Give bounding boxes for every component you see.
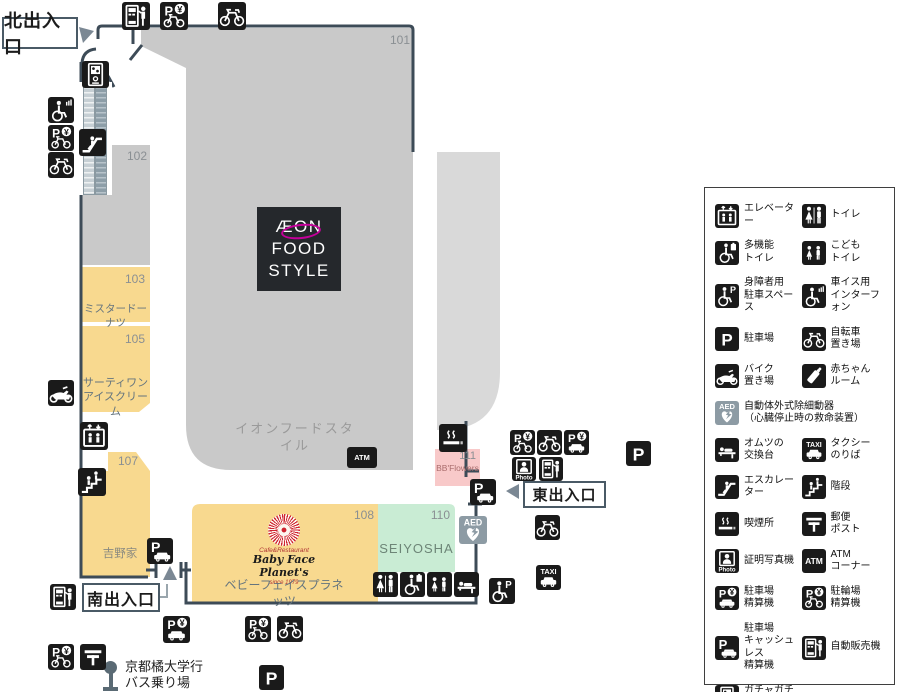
photo-icon: Photo — [715, 549, 739, 573]
toilet-icon — [802, 204, 826, 228]
toilet-icon — [373, 572, 398, 597]
aeon-logo-line1: ÆON — [276, 216, 323, 238]
bicycle-icon — [277, 616, 303, 642]
diaper-icon — [715, 438, 739, 462]
babyface-logo-main: Baby Face Planet's — [231, 554, 337, 579]
legend-item-label: エスカレーター — [744, 475, 800, 500]
aed-icon: AED — [459, 516, 487, 544]
legend-item-vending: 自動販売機 — [802, 636, 887, 660]
svg-text:ATM: ATM — [354, 453, 370, 462]
bicycle-pay-icon: P¥ — [245, 616, 271, 642]
east-entrance-label: 東出入口 — [523, 481, 606, 508]
bus-stop-line1: 京都橘大学行 — [125, 659, 203, 675]
svg-text:¥: ¥ — [579, 431, 584, 441]
store-name-31-icecream: サーティワン アイスクリーム — [81, 376, 150, 419]
aeon-logo-line2: FOOD — [271, 238, 326, 260]
legend-item-label: 階段 — [831, 481, 851, 494]
photo-icon: Photo — [512, 457, 536, 481]
taxi-icon: TAXI — [536, 565, 561, 590]
store-name-aeon-food-style: イオンフードスタイル — [230, 421, 360, 455]
area-number-107: 107 — [94, 454, 138, 468]
legend-item-diaper: オムツの 交換台 — [715, 438, 800, 463]
area-number-105: 105 — [99, 332, 145, 346]
legend-item-handicap-parking: P身障者用 駐車スペース — [715, 277, 800, 315]
legend-item-toilet: トイレ — [802, 204, 887, 228]
svg-text:AED: AED — [464, 518, 482, 528]
svg-text:ATM: ATM — [805, 556, 823, 566]
legend-item-motorcycle: バイク 置き場 — [715, 364, 800, 389]
area-number-108: 108 — [330, 508, 374, 522]
bicycle-pay-icon: P¥ — [802, 586, 826, 610]
svg-text:¥: ¥ — [64, 646, 69, 656]
svg-text:P: P — [730, 285, 736, 295]
vending-icon — [539, 457, 563, 481]
gacha-icon — [715, 685, 739, 692]
legend-item-wheelchair-intercom: 車イス用 インターフォン — [802, 277, 887, 315]
legend-panel: エレベータートイレ多機能 トイレこども トイレP身障者用 駐車スペース車イス用 … — [704, 187, 895, 685]
svg-text:P: P — [505, 580, 512, 591]
svg-text:¥: ¥ — [261, 618, 266, 628]
legend-item-label: 自転車 置き場 — [831, 327, 861, 352]
bicycle-icon — [218, 2, 246, 30]
bus-stop-base — [103, 687, 118, 691]
bicycle-icon — [535, 515, 560, 540]
svg-text:P: P — [633, 444, 645, 464]
svg-text:¥: ¥ — [177, 5, 183, 15]
elevator-icon — [715, 204, 739, 228]
motorcycle-icon — [48, 380, 74, 406]
legend-item-label: 車イス用 インターフォン — [831, 277, 887, 315]
aeon-logo-line3: STYLE — [268, 260, 329, 282]
kidstoilet-icon — [427, 572, 452, 597]
legend-item-label: 多機能 トイレ — [744, 240, 774, 265]
parking-pay-icon: P¥ — [715, 586, 739, 610]
elevator-icon — [80, 422, 108, 450]
parking-pay-icon: P¥ — [564, 430, 589, 455]
aeon-food-style-logo: ÆON FOOD STYLE — [257, 207, 341, 291]
smoking-icon — [439, 424, 467, 452]
legend-item-stairs: 階段 — [802, 475, 887, 499]
post-icon — [802, 512, 826, 536]
legend-item-label: 駐車場 精算機 — [744, 586, 774, 611]
bicycle-icon — [537, 430, 562, 455]
bicycle-pay-icon: P¥ — [160, 2, 188, 30]
legend-item-elevator: エレベーター — [715, 203, 800, 228]
escalator-icon — [79, 129, 106, 156]
bus-stop-label: 京都橘大学行 バス乗り場 — [125, 659, 203, 692]
bicycle-icon — [802, 327, 826, 351]
area-number-102: 102 — [103, 149, 147, 163]
stairs-icon — [78, 468, 106, 496]
svg-text:TAXI: TAXI — [540, 567, 556, 576]
legend-grid: エレベータートイレ多機能 トイレこども トイレP身障者用 駐車スペース車イス用 … — [715, 203, 886, 692]
store-name-bb-flowers: BB'Flowers — [435, 463, 480, 474]
post-icon — [80, 644, 106, 670]
legend-item-parking-pay: P¥駐車場 精算機 — [715, 586, 800, 611]
kidstoilet-icon — [802, 241, 826, 265]
parking-icon: P — [715, 327, 739, 351]
legend-item-label: バイク 置き場 — [744, 364, 774, 389]
babyroom-icon — [802, 364, 826, 388]
legend-item-label: ガチャガチャ — [744, 685, 800, 692]
area-number-101: 101 — [368, 33, 410, 47]
legend-item-parking: P駐車場 — [715, 327, 800, 351]
north-entrance-arrow — [79, 27, 94, 43]
east-entrance-arrow — [506, 484, 519, 499]
vending-icon — [802, 636, 826, 660]
legend-item-escalator: エスカレーター — [715, 475, 800, 500]
bus-stop-pole — [109, 673, 113, 687]
legend-item-parking-cashless: P駐車場 キャッシュレス 精算機 — [715, 623, 800, 673]
parking-pay-icon: P¥ — [163, 616, 190, 643]
wheelchair-intercom-icon — [48, 97, 74, 123]
parking-icon: P — [626, 441, 651, 466]
legend-item-label: トイレ — [831, 209, 861, 222]
svg-text:P: P — [568, 433, 576, 445]
vending-icon — [122, 2, 150, 30]
store-name-babyface-planets: ベビーフェイスプラネッツ — [224, 578, 344, 609]
legend-item-label: 証明写真機 — [744, 555, 794, 568]
bicycle-pay-icon: P¥ — [48, 644, 74, 670]
parking-cashless-icon: P — [470, 479, 496, 505]
bicycle-pay-icon: P¥ — [510, 430, 535, 455]
legend-item-photo: Photo証明写真機 — [715, 549, 800, 573]
svg-text:P: P — [164, 3, 173, 18]
wheelchair-intercom-icon — [802, 284, 826, 308]
legend-item-label: エレベーター — [744, 203, 800, 228]
legend-item-kidstoilet: こども トイレ — [802, 240, 887, 265]
svg-text:¥: ¥ — [816, 588, 821, 597]
store-name-mister-donut: ミスタードーナツ — [81, 303, 150, 330]
atm-icon: ATM — [802, 549, 826, 573]
svg-text:P: P — [721, 331, 732, 350]
bus-stop-line2: バス乗り場 — [125, 675, 203, 691]
legend-item-aed: AED自動体外式除細動器 （心臓停止時の救命装置） — [715, 401, 886, 426]
legend-item-label: 赤ちゃん ルーム — [831, 364, 871, 389]
parking-icon: P — [259, 665, 284, 690]
store-name-seiyosha: SEIYOSHA — [378, 541, 455, 558]
svg-text:¥: ¥ — [64, 127, 69, 137]
escalator-icon — [715, 475, 739, 499]
babyface-sun-logo — [268, 514, 300, 546]
svg-text:Photo: Photo — [719, 567, 736, 573]
legend-item-label: 駐輪場 精算機 — [831, 586, 861, 611]
legend-item-multitoilet: 多機能 トイレ — [715, 240, 800, 265]
vending-icon — [50, 584, 76, 610]
store-name-yoshinoya: 吉野家 — [92, 547, 148, 562]
legend-item-label: タクシー のりば — [831, 438, 871, 463]
handicap-parking-icon: P — [715, 284, 739, 308]
legend-item-label: こども トイレ — [831, 240, 861, 265]
legend-item-label: 駐車場 キャッシュレス 精算機 — [744, 623, 800, 673]
legend-item-label: 自動体外式除細動器 （心臓停止時の救命装置） — [744, 401, 864, 426]
multitoilet-icon — [715, 241, 739, 265]
svg-text:P: P — [167, 618, 175, 632]
legend-item-label: 郵便 ポスト — [831, 512, 861, 537]
motorcycle-icon — [715, 364, 739, 388]
legend-item-smoking: 喫煙所 — [715, 512, 800, 536]
south-entrance-label: 南出入口 — [82, 583, 160, 612]
legend-item-post: 郵便 ポスト — [802, 512, 887, 537]
parking-ramp-area — [437, 152, 500, 430]
gacha-icon — [82, 61, 109, 88]
svg-text:TAXI: TAXI — [806, 442, 821, 449]
aed-icon: AED — [715, 401, 739, 425]
legend-item-bicycle-pay: P¥駐輪場 精算機 — [802, 586, 887, 611]
legend-item-label: 身障者用 駐車スペース — [744, 277, 800, 315]
svg-text:AED: AED — [719, 402, 735, 411]
svg-text:Photo: Photo — [516, 475, 533, 481]
atm-icon: ATM — [347, 447, 377, 468]
svg-text:¥: ¥ — [180, 618, 185, 628]
south-entrance-arrow — [163, 566, 177, 580]
legend-item-label: 駐車場 — [744, 333, 774, 346]
parking-cashless-icon: P — [147, 538, 173, 564]
taxi-icon: TAXI — [802, 438, 826, 462]
svg-text:P: P — [266, 668, 278, 688]
multitoilet-icon — [400, 572, 425, 597]
legend-item-taxi: TAXIタクシー のりば — [802, 438, 887, 463]
legend-item-label: オムツの 交換台 — [744, 438, 784, 463]
area-number-103: 103 — [99, 272, 145, 286]
legend-item-bicycle: 自転車 置き場 — [802, 327, 887, 352]
floor-map-page: 北出入口 南出入口 東出入口 ÆON FOOD STYLE 101 イオンフード… — [0, 0, 900, 692]
legend-item-label: ATM コーナー — [831, 549, 871, 574]
smoking-icon — [715, 512, 739, 536]
parking-cashless-icon: P — [715, 636, 739, 660]
legend-item-label: 喫煙所 — [744, 518, 774, 531]
bicycle-pay-icon: P¥ — [48, 125, 74, 151]
bicycle-icon — [48, 152, 74, 178]
diaper-icon — [454, 572, 479, 597]
handicap-parking-icon: P — [489, 578, 515, 604]
svg-text:¥: ¥ — [730, 588, 735, 597]
legend-item-babyroom: 赤ちゃん ルーム — [802, 364, 887, 389]
legend-item-label: 自動販売機 — [831, 641, 881, 654]
svg-text:¥: ¥ — [525, 431, 530, 441]
svg-text:P: P — [719, 589, 726, 601]
legend-item-atm: ATMATM コーナー — [802, 549, 887, 574]
legend-item-gacha: ガチャガチャ — [715, 685, 800, 692]
area-number-110: 110 — [406, 508, 450, 522]
north-entrance-label: 北出入口 — [2, 17, 78, 49]
stairs-icon — [802, 475, 826, 499]
